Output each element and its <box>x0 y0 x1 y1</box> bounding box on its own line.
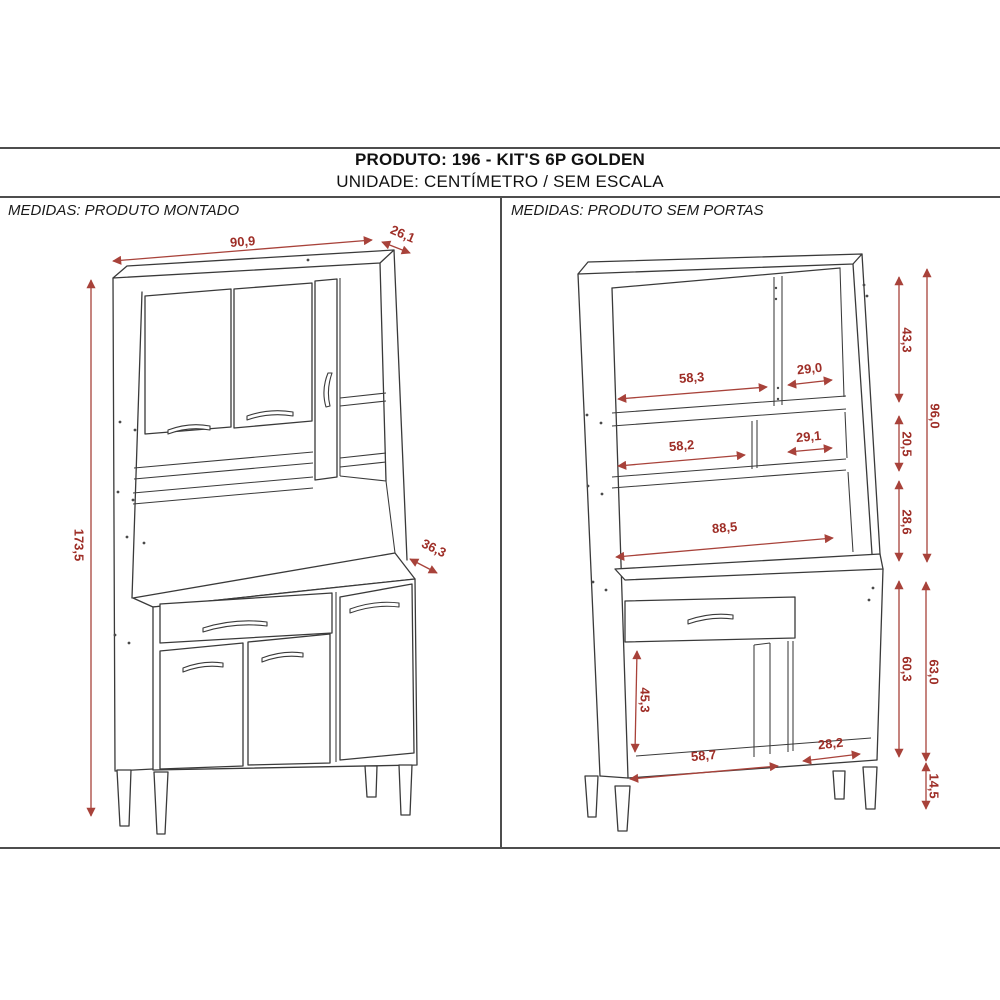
shelf-right-opening-label: 29,1 <box>795 428 822 445</box>
cabinet-left-bottom-edge <box>600 776 628 778</box>
shelf-left-opening-label: 58,2 <box>668 437 695 454</box>
hutch-shelf-band-2 <box>133 477 313 504</box>
cabinet-top-face <box>113 250 394 278</box>
top-left-opening-label: 58,3 <box>678 369 704 386</box>
shelf-column-bottom <box>340 476 386 481</box>
sheet-bottom-border <box>0 847 1000 849</box>
column-shelf-1 <box>340 393 386 406</box>
doorless-dimensions: 58,3 29,0 58,2 29,1 88,5 58,7 28,2 45,3 … <box>616 269 943 809</box>
base-depth-dim-label: 36,3 <box>419 536 448 561</box>
countertop <box>615 554 883 580</box>
base-depth-dim-line <box>410 559 437 573</box>
cabinet-top-face <box>578 254 862 274</box>
product-title: PRODUTO: 196 - KIT'S 6P GOLDEN <box>0 150 1000 170</box>
screw-hole-dots <box>586 284 875 602</box>
doorless-product-drawing: 58,3 29,0 58,2 29,1 88,5 58,7 28,2 45,3 … <box>501 200 997 845</box>
cabinet-back-right-edge <box>394 250 407 560</box>
drawing-sheet: PRODUTO: 196 - KIT'S 6P GOLDEN UNIDADE: … <box>0 0 1000 1000</box>
top-left-opening-line <box>618 387 767 399</box>
hutch-divider <box>774 276 782 406</box>
base-height-label: 63,0 <box>927 659 942 684</box>
cabinet-line-art <box>113 250 417 834</box>
base-right-opening-label: 28,2 <box>817 735 844 753</box>
base-left-door <box>160 643 243 769</box>
leg-height-label: 14,5 <box>927 773 942 798</box>
top-section-height-label: 43,3 <box>900 327 915 352</box>
base-left-opening-line <box>630 766 778 779</box>
hutch-shelf-band-1 <box>134 452 313 479</box>
shelf-section-height-label: 20,5 <box>900 431 915 456</box>
leg-mid-left <box>154 772 168 834</box>
cabinet-left-inner-edge <box>132 292 142 598</box>
leg-back-right <box>365 766 377 797</box>
shelf-right-opening-line <box>788 448 832 452</box>
niche-height-label: 28,6 <box>900 509 915 534</box>
upper-right-door <box>234 283 312 428</box>
interior-right-wall <box>840 268 853 552</box>
cabinet-front-right-edge <box>380 263 386 481</box>
drawer-front <box>625 597 795 642</box>
counter-width-line <box>616 538 833 557</box>
leg-back-left <box>585 776 598 817</box>
cabinet-front-right-edge <box>853 264 872 554</box>
cabinet-left-inner-edge <box>612 288 628 778</box>
niche-right-edge <box>386 481 395 553</box>
top-right-opening-label: 29,0 <box>796 360 823 378</box>
width-dim-label: 90,9 <box>229 233 255 250</box>
base-center-divider <box>754 643 770 757</box>
base-interior-height-label: 60,3 <box>900 656 915 681</box>
assembled-product-drawing: 90,9 26,1 173,5 36,3 <box>3 200 497 845</box>
column-shelf-2 <box>340 453 386 467</box>
base-opening-height-line <box>635 651 637 752</box>
counter-width-label: 88,5 <box>711 519 738 536</box>
hutch-shelf-1 <box>612 396 846 426</box>
unit-subtitle: UNIDADE: CENTÍMETRO / SEM ESCALA <box>0 172 1000 192</box>
base-opening-height-label: 45,3 <box>638 687 653 712</box>
leg-front-right <box>399 765 412 815</box>
top-depth-dim-label: 26,1 <box>388 222 417 246</box>
top-right-opening-line <box>788 380 832 385</box>
shelf-left-opening-line <box>618 455 745 466</box>
base-right-opening-line <box>803 754 860 761</box>
cabinet-left-outer-edge <box>578 274 600 776</box>
leg-front-left <box>615 786 630 831</box>
base-right-edge <box>877 569 883 760</box>
upper-left-door <box>145 289 231 434</box>
base-right-wall <box>788 641 793 752</box>
leg-back-right <box>833 771 845 799</box>
sheet-top-border <box>0 147 1000 149</box>
cabinet-back-right-edge <box>862 254 880 554</box>
cabinet-left-outer-edge <box>113 278 115 770</box>
leg-front-right <box>863 767 877 809</box>
base-left-opening-label: 58,7 <box>690 747 717 764</box>
leg-front-left <box>117 770 131 826</box>
hutch-height-label: 96,0 <box>928 403 943 428</box>
cubby-divider <box>752 420 757 469</box>
height-dim-label: 173,5 <box>72 529 87 562</box>
